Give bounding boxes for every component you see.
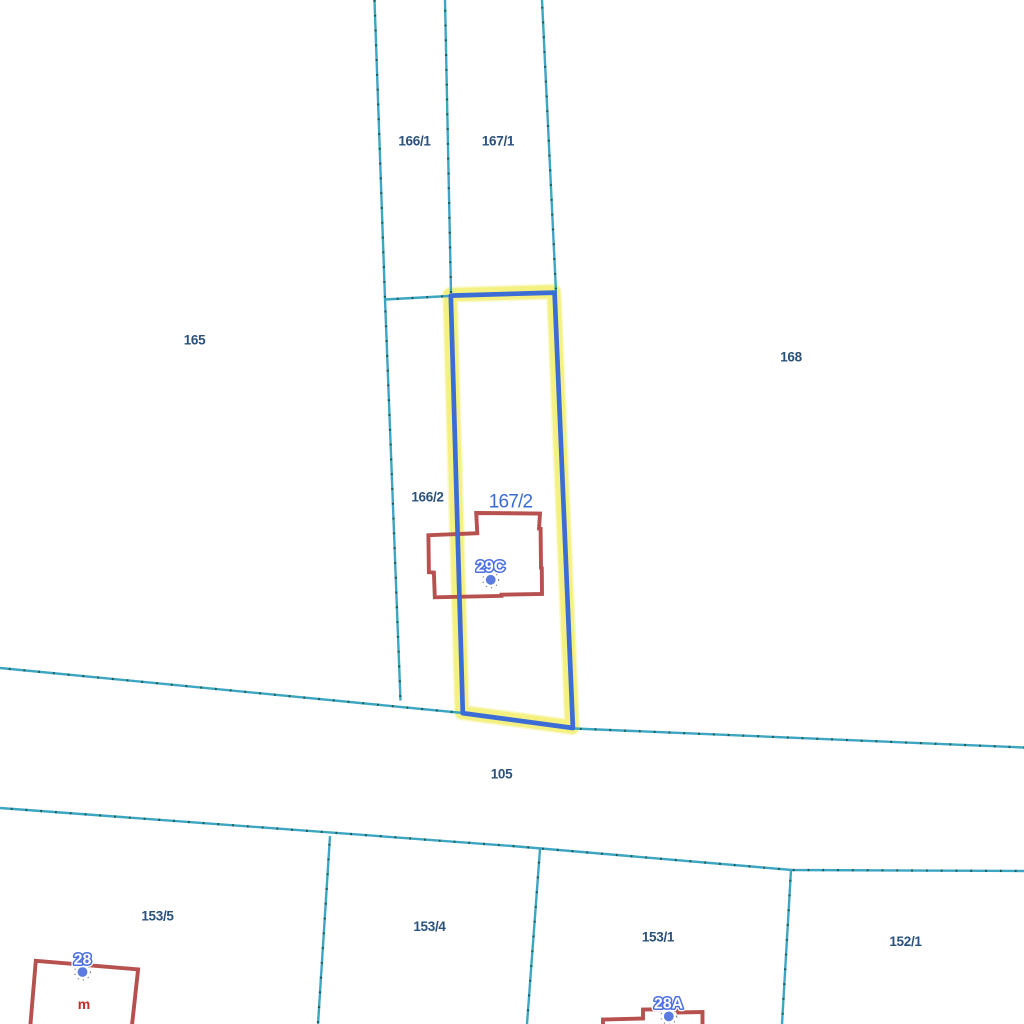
svg-text:167/1: 167/1 (482, 134, 515, 149)
svg-text:m: m (78, 996, 90, 1012)
svg-text:28: 28 (74, 952, 92, 969)
svg-text:29C: 29C (476, 559, 506, 576)
svg-text:152/1: 152/1 (889, 934, 922, 949)
svg-text:153/1: 153/1 (642, 930, 675, 945)
svg-text:166/1: 166/1 (398, 134, 431, 149)
svg-text:165: 165 (184, 333, 206, 348)
svg-text:153/4: 153/4 (413, 919, 446, 934)
svg-text:153/5: 153/5 (141, 909, 174, 924)
svg-text:168: 168 (780, 350, 802, 365)
svg-text:105: 105 (491, 767, 513, 782)
svg-text:166/2: 166/2 (411, 490, 443, 505)
svg-text:28A: 28A (654, 996, 684, 1013)
svg-text:167/2: 167/2 (489, 492, 533, 513)
